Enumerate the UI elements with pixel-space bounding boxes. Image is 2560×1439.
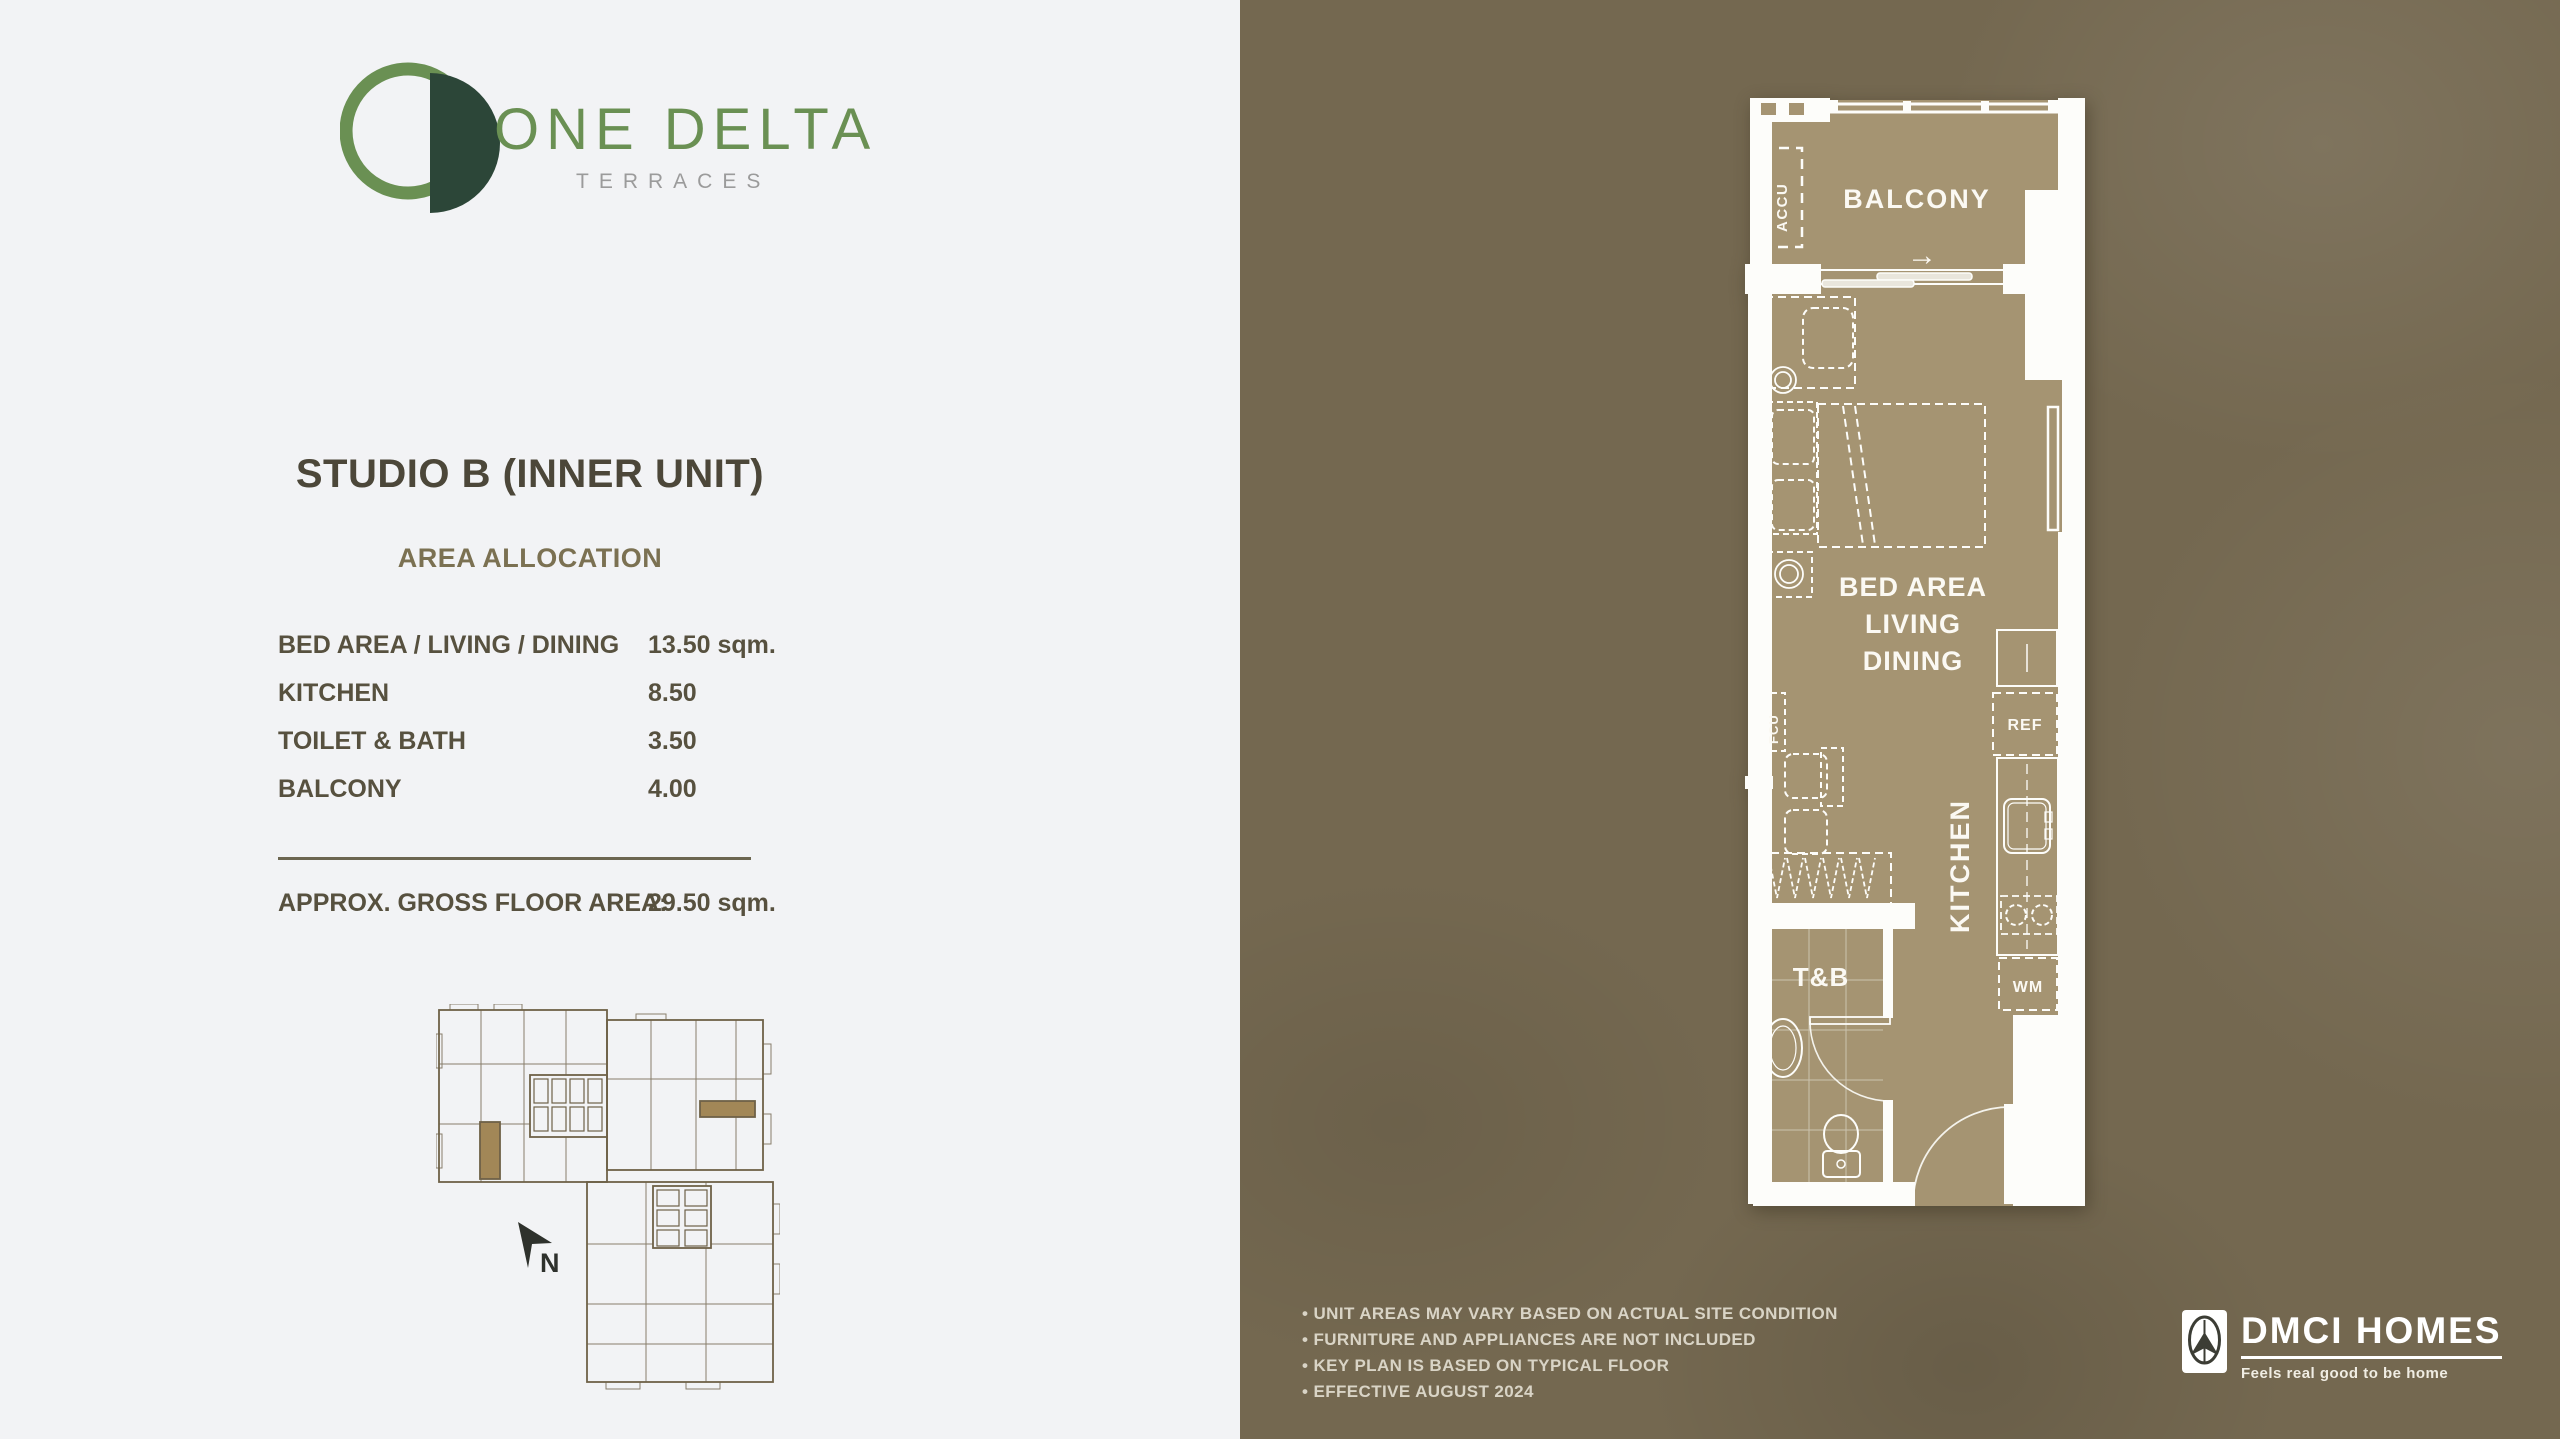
total-label: APPROX. GROSS FLOOR AREA: <box>278 889 667 917</box>
brand-subname: TERRACES <box>576 170 770 194</box>
area-label: BED AREA / LIVING / DINING <box>278 631 619 659</box>
key-plan-building <box>436 1004 780 1389</box>
accu-label: ACCU <box>1774 183 1791 232</box>
note-line: • UNIT AREAS MAY VARY BASED ON ACTUAL SI… <box>1302 1301 1838 1327</box>
area-label: TOILET & BATH <box>278 727 466 755</box>
wm-label: WM <box>2013 979 2043 996</box>
flyer-page: ONE DELTA TERRACES STUDIO B (INNER UNIT)… <box>0 0 2560 1439</box>
section-title: AREA ALLOCATION <box>140 543 920 574</box>
north-label: N <box>540 1248 560 1278</box>
ref-label: REF <box>2008 717 2043 734</box>
developer-tagline: Feels real good to be home <box>2241 1365 2502 1382</box>
area-value: 3.50 <box>648 727 697 756</box>
area-value: 13.50 sqm. <box>648 631 776 660</box>
area-label: KITCHEN <box>278 679 389 707</box>
area-value: 8.50 <box>648 679 697 708</box>
tb-label: T&B <box>1793 962 1849 992</box>
balcony-label: BALCONY <box>1843 184 1991 214</box>
key-plan-highlight-unit <box>480 1122 500 1179</box>
dmci-logo-icon <box>2182 1310 2227 1373</box>
developer-name: DMCI HOMES <box>2241 1310 2502 1359</box>
note-line: • FURNITURE AND APPLIANCES ARE NOT INCLU… <box>1302 1327 1838 1353</box>
note-line: • KEY PLAN IS BASED ON TYPICAL FLOOR <box>1302 1353 1838 1379</box>
developer-logo-block: DMCI HOMES Feels real good to be home <box>2182 1310 2502 1382</box>
area-value: 4.00 <box>648 775 697 804</box>
brand-name: ONE DELTA <box>494 96 877 163</box>
living-label: LIVING <box>1865 609 1961 639</box>
total-value: 29.50 sqm. <box>648 889 776 918</box>
table-divider <box>278 857 751 860</box>
area-allocation-table: BED AREA / LIVING / DINING 13.50 sqm. KI… <box>278 631 778 823</box>
table-row: BED AREA / LIVING / DINING 13.50 sqm. <box>278 631 778 679</box>
table-row: TOILET & BATH 3.50 <box>278 727 778 775</box>
logo-half-circle <box>430 73 500 213</box>
key-plan-highlight-unit <box>700 1101 755 1117</box>
wall-vent <box>1761 103 1776 115</box>
footnotes: • UNIT AREAS MAY VARY BASED ON ACTUAL SI… <box>1302 1301 1838 1405</box>
bed-area-label: BED AREA <box>1839 572 1987 602</box>
developer-text: DMCI HOMES Feels real good to be home <box>2241 1310 2502 1382</box>
total-row: APPROX. GROSS FLOOR AREA: 29.50 sqm. <box>278 889 778 918</box>
wall-vent <box>1789 103 1804 115</box>
note-line: • EFFECTIVE AUGUST 2024 <box>1302 1379 1838 1405</box>
one-delta-logo-icon <box>340 56 510 228</box>
unit-title: STUDIO B (INNER UNIT) <box>140 452 920 497</box>
floor-plan: BALCONY → ACCU BED AREA LIVING DINING FC… <box>1745 96 2091 1220</box>
area-label: BALCONY <box>278 775 402 803</box>
fcu-label: FCU <box>1766 714 1781 744</box>
kitchen-label: KITCHEN <box>1945 799 1975 933</box>
table-row: BALCONY 4.00 <box>278 775 778 823</box>
key-plan: N <box>436 1004 780 1396</box>
entry-arrow-icon: → <box>1907 239 1937 272</box>
dining-label: DINING <box>1863 646 1964 676</box>
table-row: KITCHEN 8.50 <box>278 679 778 727</box>
